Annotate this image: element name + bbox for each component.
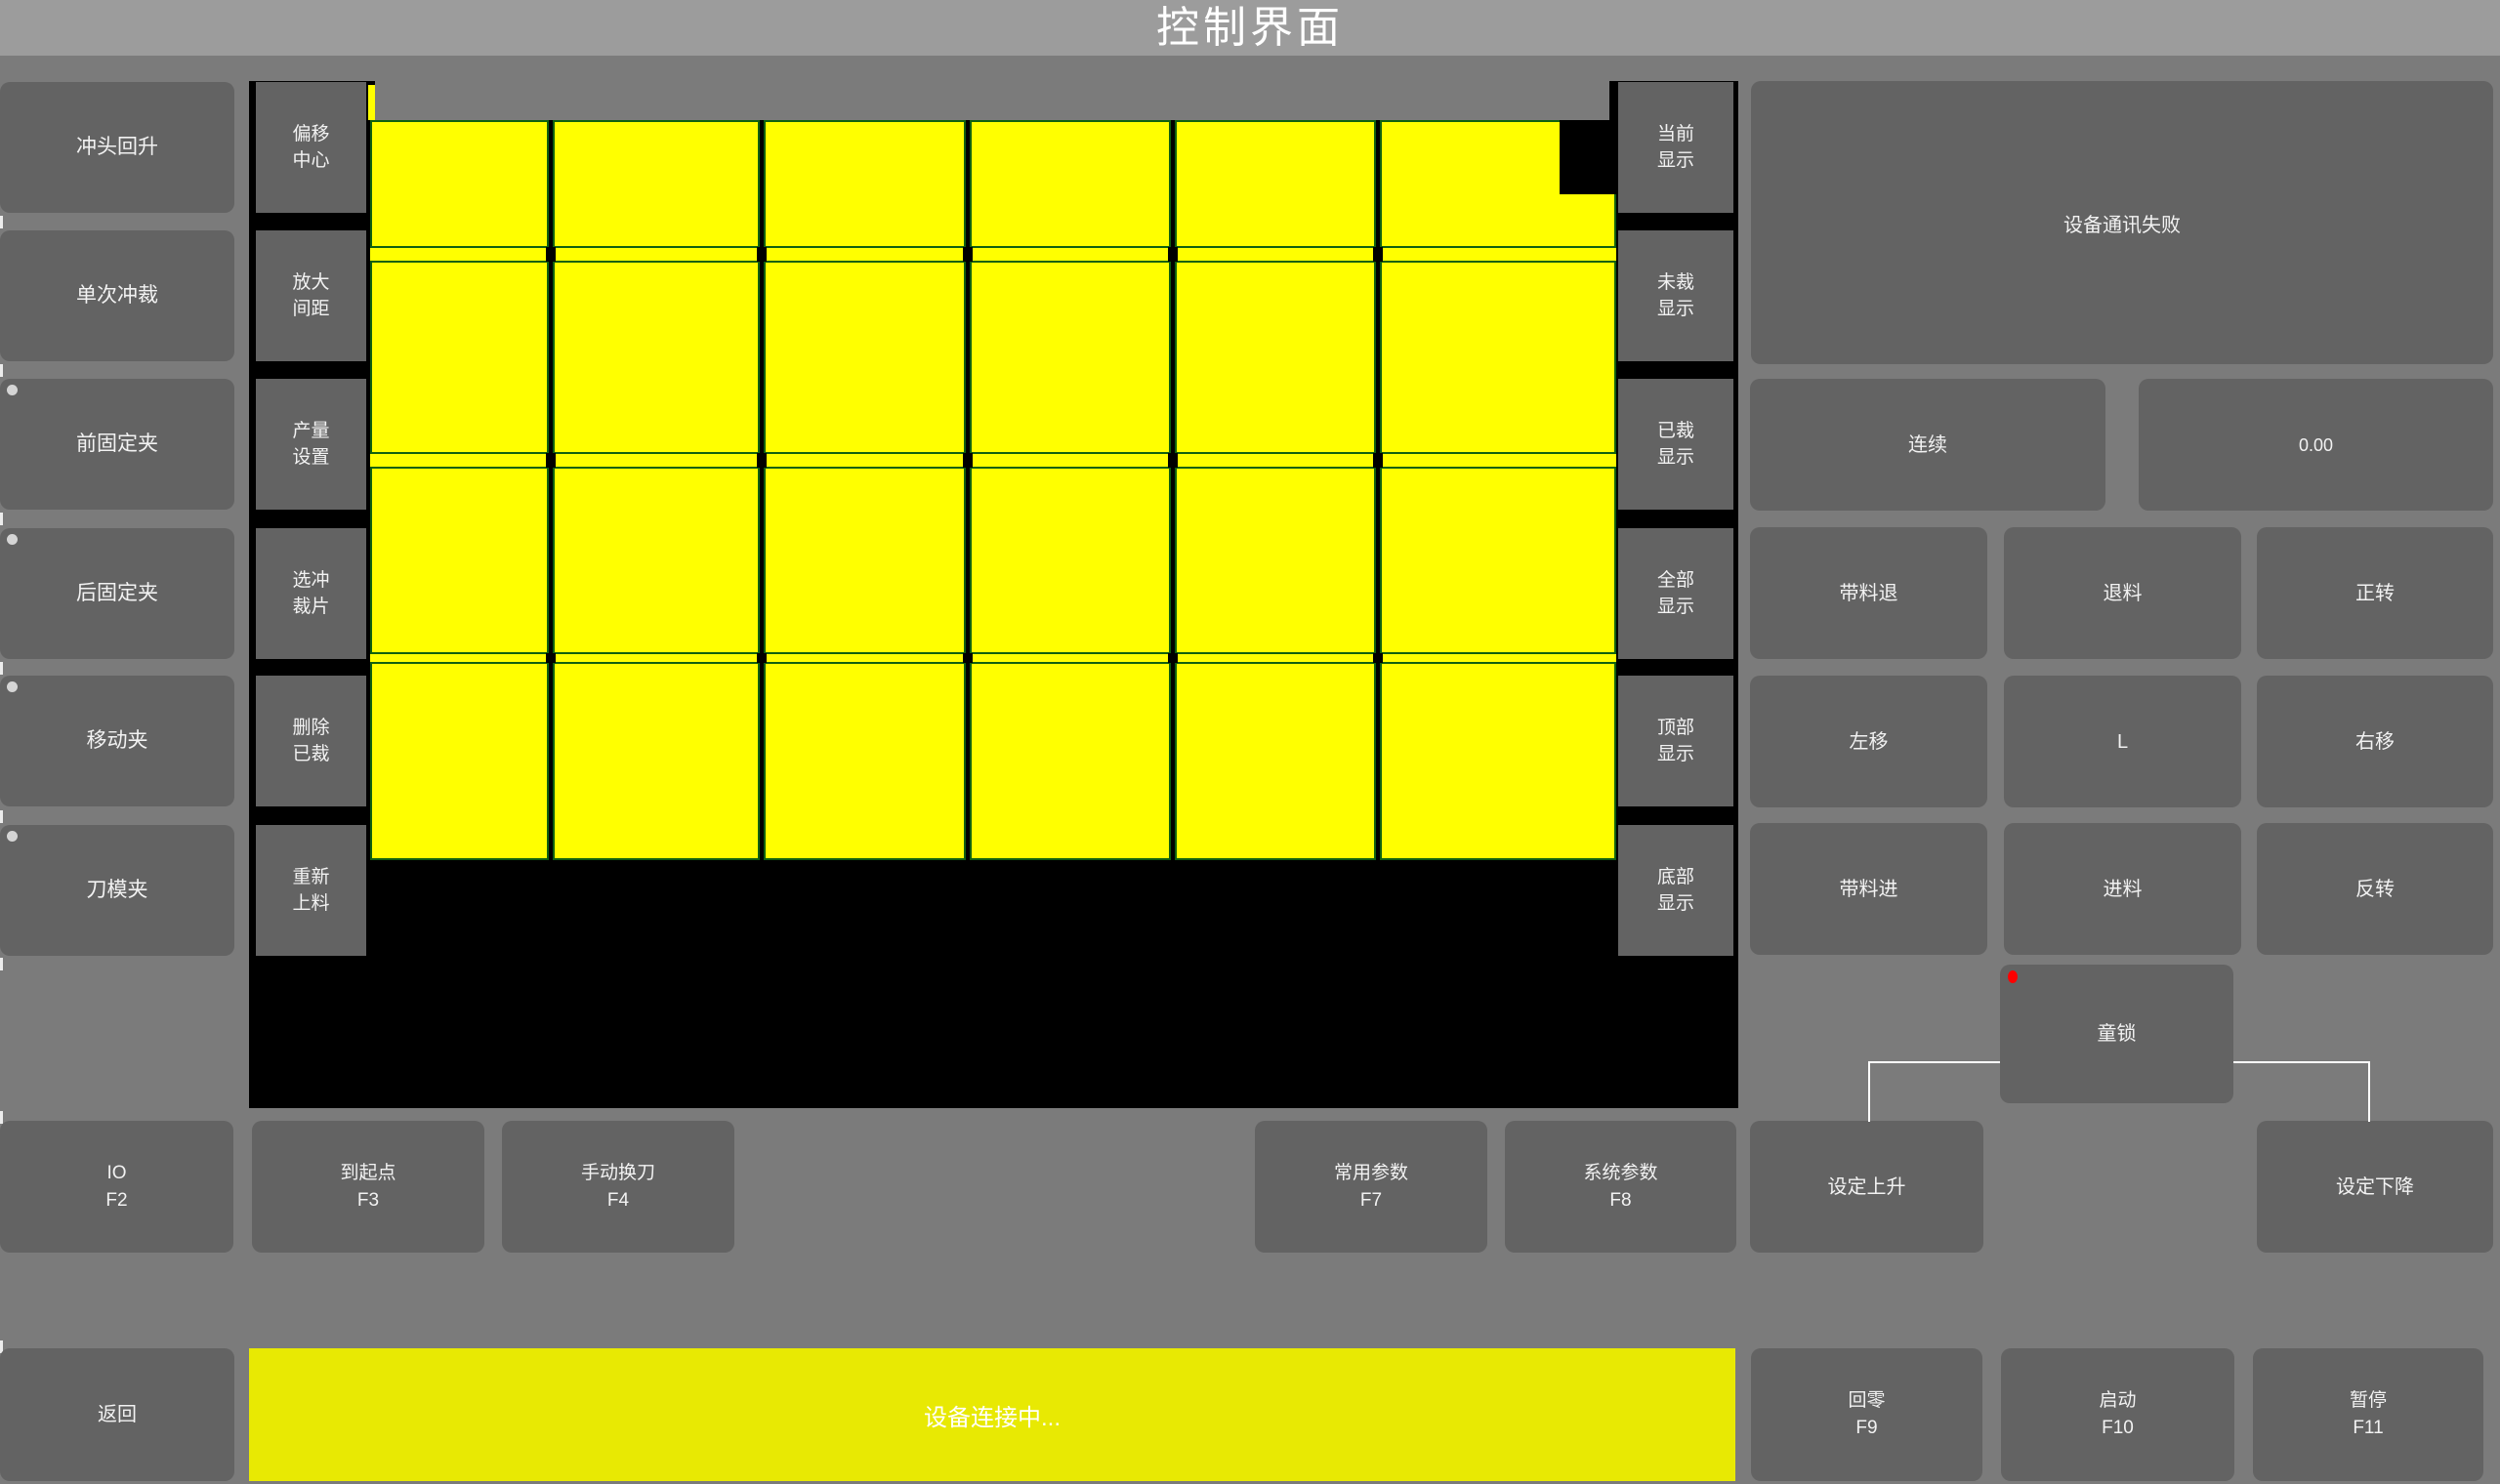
state-indicator-icon (7, 385, 18, 395)
canvas-left-button-6[interactable]: 重新 上料 (256, 825, 366, 956)
edge-tick-mark (0, 364, 3, 377)
grid-piece-r4c3[interactable] (764, 662, 966, 860)
bottom-button-F9[interactable]: 回零 F9 (1751, 1348, 1982, 1481)
cut-junction-mark (546, 453, 556, 468)
jog-button-L[interactable]: L (2004, 676, 2241, 807)
jog-button-左移[interactable]: 左移 (1750, 676, 1987, 807)
grid-piece-r4c4[interactable] (970, 662, 1171, 860)
function-button-F7[interactable]: 常用参数 F7 (1255, 1121, 1487, 1253)
canvas-left-button-1[interactable]: 偏移 中心 (256, 82, 366, 213)
left-button-3[interactable]: 前固定夹 (0, 379, 234, 510)
grid-piece-r1c4[interactable] (970, 120, 1171, 248)
function-button-F8[interactable]: 系统参数 F8 (1505, 1121, 1736, 1253)
set-fall-button[interactable]: 设定下降 (2257, 1121, 2493, 1253)
function-button-F3[interactable]: 到起点 F3 (252, 1121, 484, 1253)
grid-piece-r3c2[interactable] (553, 467, 760, 654)
cut-junction-mark (1373, 247, 1383, 262)
grid-piece-r3c4[interactable] (970, 467, 1171, 654)
canvas-right-button-2[interactable]: 未裁 显示 (1618, 230, 1733, 361)
cut-junction-mark (1168, 653, 1178, 663)
state-indicator-icon (7, 831, 18, 842)
grid-top-cover-strip (375, 81, 1609, 120)
canvas-left-button-4[interactable]: 选冲 裁片 (256, 528, 366, 659)
grid-piece-r2c4[interactable] (970, 261, 1171, 454)
jog-button-带料退[interactable]: 带料退 (1750, 527, 1987, 659)
cut-junction-mark (546, 653, 556, 663)
bottom-button-F11[interactable]: 暂停 F11 (2253, 1348, 2483, 1481)
jog-button-反转[interactable]: 反转 (2257, 823, 2493, 955)
connection-status-text: 设备连接中... (924, 1398, 1061, 1432)
cut-junction-mark (963, 247, 973, 262)
cut-junction-mark (757, 247, 767, 262)
jog-button-进料[interactable]: 进料 (2004, 823, 2241, 955)
child-lock-button[interactable]: 童锁 (2000, 965, 2233, 1103)
left-button-1[interactable]: 冲头回升 (0, 82, 234, 213)
canvas-right-button-5[interactable]: 顶部 显示 (1618, 676, 1733, 806)
cut-junction-mark (963, 653, 973, 663)
row-gap-band (370, 654, 1616, 662)
row-gap-band (370, 248, 1616, 261)
grid-piece-r1c1[interactable] (370, 120, 549, 248)
connection-status-bar: 设备连接中... (249, 1348, 1735, 1481)
cut-junction-mark (1168, 453, 1178, 468)
state-indicator-icon (7, 681, 18, 692)
left-button-5[interactable]: 移动夹 (0, 676, 234, 806)
edge-tick-mark (0, 958, 3, 970)
grid-piece-r1c2[interactable] (553, 120, 760, 248)
function-button-F2[interactable]: IO F2 (0, 1121, 233, 1253)
left-button-6[interactable]: 刀模夹 (0, 825, 234, 956)
jog-button-带料进[interactable]: 带料进 (1750, 823, 1987, 955)
grid-piece-r3c5[interactable] (1175, 467, 1376, 654)
grid-piece-r3c3[interactable] (764, 467, 966, 654)
value-display[interactable]: 0.00 (2139, 379, 2493, 511)
grid-piece-r3c1[interactable] (370, 467, 549, 654)
back-button[interactable]: 返回 (0, 1348, 234, 1481)
bottom-button-F10[interactable]: 启动 F10 (2001, 1348, 2234, 1481)
grid-piece-r4c6[interactable] (1380, 662, 1616, 860)
child-lock-label: 童锁 (2098, 1020, 2137, 1048)
grid-piece-r2c1[interactable] (370, 261, 549, 454)
grid-piece-r4c5[interactable] (1175, 662, 1376, 860)
page-title: 控制界面 (1156, 3, 1344, 53)
grid-top-left-sliver (368, 85, 375, 120)
row-gap-band (370, 454, 1616, 467)
canvas-right-button-4[interactable]: 全部 显示 (1618, 528, 1733, 659)
cut-junction-mark (963, 453, 973, 468)
edge-tick-mark (0, 810, 3, 823)
cut-junction-mark (1373, 453, 1383, 468)
canvas-right-button-6[interactable]: 底部 显示 (1618, 825, 1733, 956)
canvas-right-button-3[interactable]: 已裁 显示 (1618, 379, 1733, 510)
canvas-left-button-5[interactable]: 删除 已裁 (256, 676, 366, 806)
grid-piece-r3c6[interactable] (1380, 467, 1616, 654)
jog-button-右移[interactable]: 右移 (2257, 676, 2493, 807)
grid-piece-r1c5[interactable] (1175, 120, 1376, 248)
canvas-left-button-3[interactable]: 产量 设置 (256, 379, 366, 510)
edge-tick-mark (0, 216, 3, 228)
title-bar: 控制界面 (0, 0, 2500, 56)
state-indicator-icon (7, 534, 18, 545)
jog-button-退料[interactable]: 退料 (2004, 527, 2241, 659)
canvas-left-button-2[interactable]: 放大 间距 (256, 230, 366, 361)
child-lock-indicator-icon (2008, 970, 2018, 983)
left-button-2[interactable]: 单次冲裁 (0, 230, 234, 361)
grid-top-right-notch (1560, 120, 1618, 194)
edge-tick-mark (0, 662, 3, 675)
cut-junction-mark (757, 453, 767, 468)
jog-button-正转[interactable]: 正转 (2257, 527, 2493, 659)
control-screen: 控制界面 冲头回升单次冲裁前固定夹后固定夹移动夹刀模夹 偏移 中心放大 间距产量… (0, 0, 2500, 1484)
edge-tick-mark (0, 1111, 3, 1124)
edge-tick-mark (0, 513, 3, 525)
set-rise-button[interactable]: 设定上升 (1750, 1121, 1983, 1253)
grid-piece-r2c2[interactable] (553, 261, 760, 454)
function-button-F4[interactable]: 手动换刀 F4 (502, 1121, 734, 1253)
device-message-panel: 设备通讯失败 (1751, 81, 2493, 364)
grid-piece-r4c1[interactable] (370, 662, 549, 860)
cut-junction-mark (546, 247, 556, 262)
grid-piece-r2c5[interactable] (1175, 261, 1376, 454)
grid-piece-r2c6[interactable] (1380, 261, 1616, 454)
grid-piece-r4c2[interactable] (553, 662, 760, 860)
left-button-4[interactable]: 后固定夹 (0, 528, 234, 659)
continuous-button[interactable]: 连续 (1750, 379, 2105, 511)
cut-junction-mark (1373, 653, 1383, 663)
canvas-right-button-1[interactable]: 当前 显示 (1618, 82, 1733, 213)
grid-piece-r2c3[interactable] (764, 261, 966, 454)
grid-piece-r1c3[interactable] (764, 120, 966, 248)
cut-junction-mark (1168, 247, 1178, 262)
cut-junction-mark (757, 653, 767, 663)
device-message-text: 设备通讯失败 (2063, 209, 2181, 237)
